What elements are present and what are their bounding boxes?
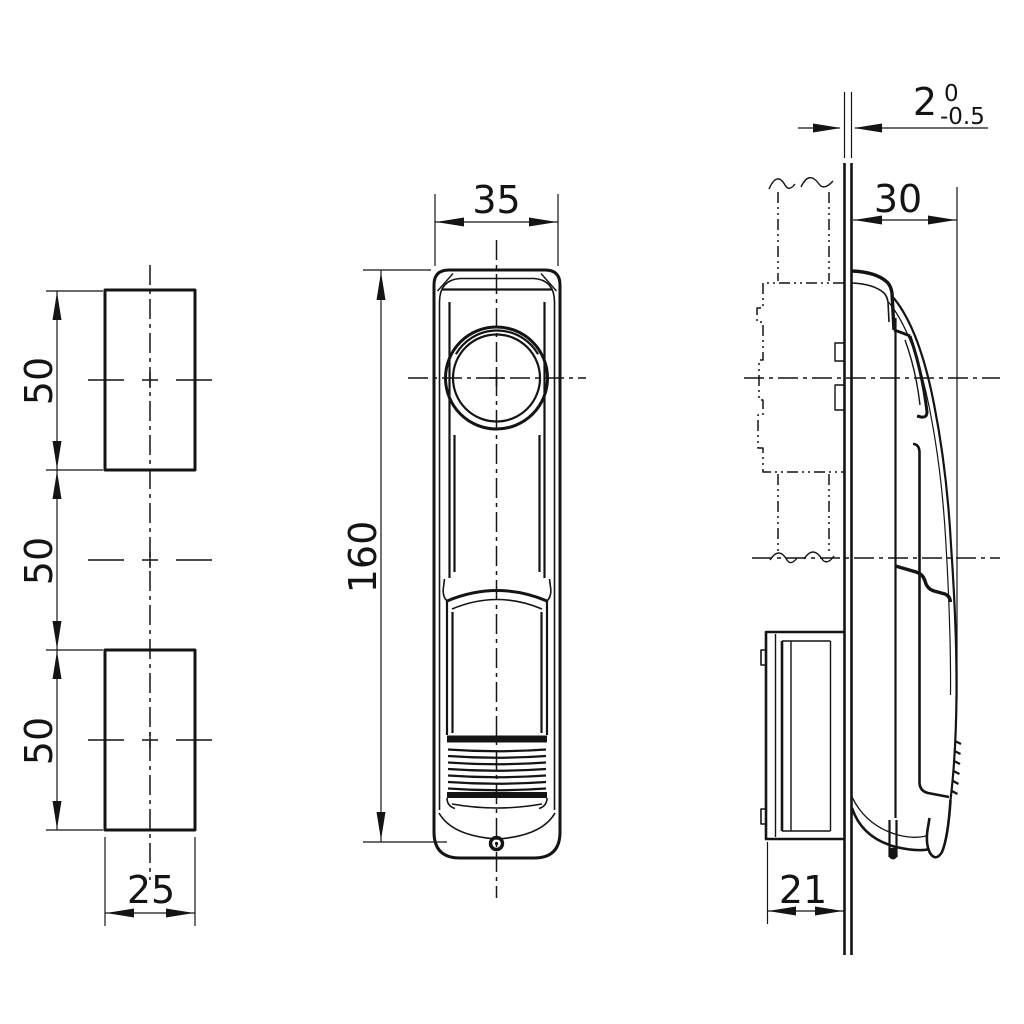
dim-35-label: 35 [472,178,520,222]
phantom-rod-upper-lines [778,192,829,281]
handle-inner-edge [913,444,949,797]
lock-housing-inner-lines [776,634,831,837]
side-view-lock-housing [761,632,844,839]
handle-latch-lip [896,566,951,602]
lock-housing-outline [766,632,844,839]
dim-2-extension-lines [845,92,852,158]
dim-50-bottom-label: 50 [17,717,61,765]
dim-2-label: 2 [913,80,937,124]
dim-30: 30 [853,177,957,700]
pivot-pin-tip [889,850,897,860]
handle-top-cap-inner [852,283,889,322]
front-view: 35 160 [341,178,586,898]
screw-hole-center [495,842,498,845]
left-view: 50 50 50 25 [17,265,212,926]
phantom-rod-lower-lines [778,474,829,552]
dim-2-arrows [813,124,882,133]
dim-30-label: 30 [874,177,922,221]
dim-50-middle-label: 50 [17,537,61,585]
phantom-rod-upper-break [769,178,833,189]
drawing-sheet: 50 50 50 25 [0,0,1024,1024]
technical-drawing: 50 50 50 25 [0,0,1024,1024]
side-view-phantom-rod-upper [769,178,833,281]
handle-grip-band-inner [905,340,920,405]
handle-bottom-hook [927,800,951,857]
front-view-center-cross [489,370,504,386]
handle-outer-silhouette [892,296,957,800]
side-view-handle-profile [852,271,961,860]
dim-2-tolerance: 2 0 -0.5 [798,80,988,158]
handle-pivot-pin [889,820,897,860]
dim-160: 160 [341,270,447,842]
dim-50-top-label: 50 [17,357,61,405]
dim-2-tol-lower-label: -0.5 [940,104,985,130]
dim-21-label: 21 [779,868,827,912]
dim-25-label: 25 [127,868,175,912]
dim-21: 21 [768,842,845,924]
side-view-phantom-rod-lower [770,474,834,563]
dim-160-label: 160 [341,521,385,594]
side-view-panel [845,163,852,955]
side-view: 2 0 -0.5 30 21 [744,80,1000,955]
phantom-housing-clips [835,343,844,410]
